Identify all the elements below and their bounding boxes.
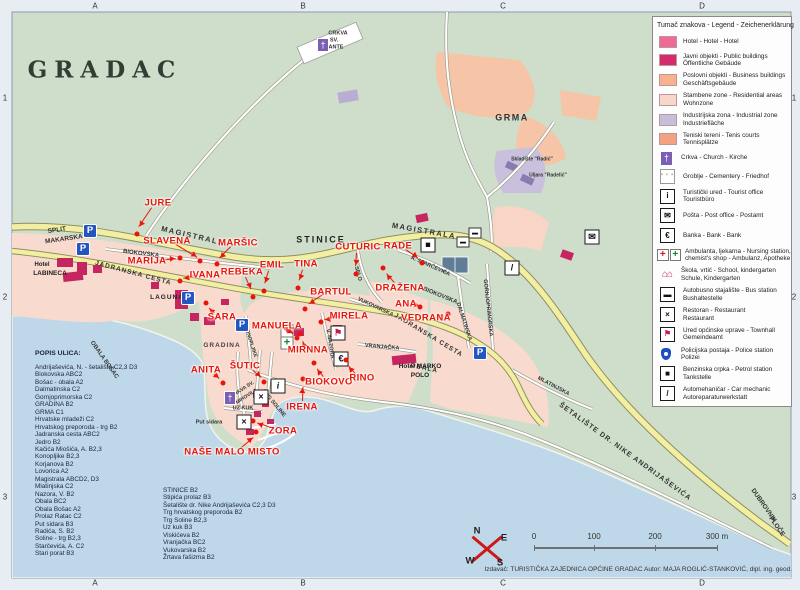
legend-line: Automehaničar - Car mechanic — [683, 386, 787, 394]
street-index-entry: Trg Soline B2,3 — [163, 517, 276, 524]
bus-station-icon: ▬ — [469, 228, 482, 239]
street-index-entry: Dalmatinska C2 — [35, 386, 137, 393]
grid-col-label: A — [92, 2, 97, 11]
street-index-entry: Uz kuk B3 — [163, 524, 276, 531]
petrol-icon: ■ — [660, 366, 675, 381]
place-label: CRKVA — [328, 31, 347, 37]
compass-north-label: N — [474, 526, 481, 537]
legend-item-text: Automehaničar - Car mechanicAutoreparatu… — [683, 386, 787, 401]
map-red-label: ŠUTIC — [230, 361, 261, 371]
legend-line: Restoran - Restaurant — [683, 307, 787, 315]
legend-line: Tennisplätze — [683, 139, 787, 147]
legend-item-tourist-office-icon: iTuristički ured - Tourist officeTourist… — [657, 189, 787, 204]
legend-line: Benzinska crpka - Petrol station — [683, 366, 787, 374]
legend-item-police-icon: Policijska postaja - Police stationPoliz… — [657, 347, 787, 362]
street-index-entry: Šetalište dr. Nike Andrijaševića C2,3 D3 — [163, 502, 276, 509]
label-dot — [420, 261, 425, 266]
map-red-label: ZORA — [269, 426, 298, 436]
tourist-office-icon: i — [271, 379, 286, 394]
legend-item-townhall-icon: ⚑Ured općinske uprave - TownhallGemeinde… — [657, 327, 787, 342]
place-label: POLO — [411, 373, 429, 380]
legend-item-text: Autobusno stajalište - Bus stationBushal… — [683, 287, 787, 302]
map-red-label: TINA — [294, 259, 318, 269]
grid-col-label: B — [300, 579, 305, 588]
parking-icon: P — [473, 346, 487, 360]
legend-line: Turistički ured - Tourist office — [683, 189, 787, 197]
green-cross-icon: + — [670, 249, 682, 261]
legend-item-text: Ambulanta, ljekarna - Nursing station,ch… — [685, 248, 791, 263]
label-dot — [381, 266, 386, 271]
label-dot — [312, 361, 317, 366]
street-index-entry: Starčevića, A. C2 — [35, 543, 137, 550]
legend-item-car-mechanic-icon: /Automehaničar - Car mechanicAutoreparat… — [657, 386, 787, 401]
legend-line: Industriefläche — [683, 120, 787, 128]
church-icon: † — [661, 152, 672, 165]
scale-tick-mark — [655, 545, 656, 551]
label-dot — [251, 295, 256, 300]
street-index-entry: Prolaz Ratac C2 — [35, 513, 137, 520]
legend-item-post-office-icon: ✉Pošta - Post office - Postamt — [657, 208, 787, 223]
grid-col-label: D — [699, 2, 705, 11]
cemetery-icon: ' ' ' — [660, 169, 675, 184]
street-index-entry: Andrijaševića, N. - šetalište C2,3 D3 — [35, 364, 137, 371]
street-index-entry: Jadranska cesta ABC2 — [35, 431, 137, 438]
legend-item-text: Škola, vrtić - School, kindergartenSchul… — [681, 267, 787, 282]
grid-row-label: 1 — [792, 94, 796, 103]
legend-item-hotel-swatch: Hotel - Hotel - Hotel — [657, 36, 787, 48]
street-index-entry: Bošac - obala A2 — [35, 379, 137, 386]
restaurant-icon: × — [237, 415, 252, 430]
street-index-entry: Konopljike B2,3 — [35, 453, 137, 460]
post-office-icon: ✉ — [585, 230, 600, 245]
restaurant-icon: × — [254, 390, 269, 405]
legend-item-petrol-icon: ■Benzinska crpka - Petrol stationTankste… — [657, 366, 787, 381]
street-index-entry: Jedro B2 — [35, 439, 137, 446]
townhall-icon: ⚑ — [331, 326, 346, 341]
credit-line: Izdavač: TURISTIČKA ZAJEDNICA OPĆINE GRA… — [484, 566, 792, 573]
map-red-label: RADE — [384, 241, 413, 251]
legend-item-text: Groblje - Cementery - Friedhof — [683, 173, 787, 181]
ambulance-icon: ++ — [657, 249, 681, 261]
label-dot — [198, 259, 203, 264]
legend-line: Öffentliche Gebäude — [683, 60, 787, 68]
map-red-label: CUTURIC — [335, 242, 381, 252]
map-red-label: SLAVENA — [143, 236, 191, 246]
label-dot — [251, 419, 256, 424]
legend-line: Autoreparaturwerkstatt — [683, 394, 787, 402]
label-dot — [298, 332, 303, 337]
legend-item-text: Crkva - Church - Kirche — [681, 154, 787, 162]
map-canvas: GRADAC POPIS ULICA: Andrijaševića, N. - … — [0, 0, 800, 590]
map-red-label: SARA — [208, 312, 237, 322]
map-red-label: MIRELA — [330, 311, 369, 321]
street-index-entry: Korjanova B2 — [35, 461, 137, 468]
legend-line: Restaurant — [683, 315, 787, 323]
gradac-town-map: GRADAC POPIS ULICA: Andrijaševića, N. - … — [0, 0, 800, 590]
bank-icon: € — [660, 228, 675, 243]
street-index-entry: GRADINA B2 — [35, 401, 137, 408]
grid-row-label: 2 — [792, 293, 796, 302]
map-red-label: MARIJA — [128, 256, 167, 266]
restaurant-icon: × — [660, 307, 675, 322]
street-index-entry: Žrtava fašizma B2 — [163, 554, 276, 561]
business-buildings-swatch — [659, 74, 677, 86]
place-label: GRADINA — [203, 343, 240, 350]
legend-item-church-icon: †Crkva - Church - Kirche — [657, 152, 787, 165]
grid-col-label: C — [500, 2, 506, 11]
street-index-panel-2: STINICE B2Stipića prolaz B3Šetalište dr.… — [163, 487, 276, 562]
map-red-label: VEDRANA — [401, 313, 451, 323]
red-cross-icon: + — [657, 249, 669, 261]
street-index-entry: Soline - trg B2,3 — [35, 535, 137, 542]
legend-line: Banka - Bank - Bank — [683, 232, 787, 240]
legend-item-text: Pošta - Post office - Postamt — [683, 212, 787, 220]
legend-item-bus-station-icon: ▬Autobusno stajalište - Bus stationBusha… — [657, 287, 787, 302]
street-index-title: POPIS ULICA: — [35, 350, 137, 357]
label-dot — [178, 256, 183, 261]
car-mechanic-icon: / — [660, 386, 675, 401]
legend-item-industrial-zone-swatch: Industrijska zona - Industrial zoneIndus… — [657, 112, 787, 127]
label-dot — [303, 307, 308, 312]
label-dot — [296, 286, 301, 291]
grid-col-label: A — [92, 579, 97, 588]
legend-item-text: Policijska postaja - Police stationPoliz… — [681, 347, 787, 362]
post-office-icon: ✉ — [660, 208, 675, 223]
place-label: GRMA — [495, 114, 529, 123]
place-label: ANTE — [329, 45, 344, 51]
tourist-office-icon: i — [660, 189, 675, 204]
residential-zone-swatch — [659, 94, 677, 106]
street-index-entry: Vukovarska B2 — [163, 547, 276, 554]
street-index-entry: Vranjačka BC2 — [163, 539, 276, 546]
legend-line: Geschäftsgebäude — [683, 80, 787, 88]
legend-item-text: Poslovni objekti - Business buildingsGes… — [683, 72, 787, 87]
street-index-list: Andrijaševića, N. - šetalište C2,3 D3Bio… — [35, 364, 137, 558]
street-label: Put sidara — [196, 420, 223, 426]
grid-col-label: B — [300, 2, 305, 11]
legend-line: Ambulanta, ljekarna - Nursing station, — [685, 248, 791, 256]
parking-icon: P — [235, 318, 249, 332]
legend-line: Polizei — [681, 354, 787, 362]
church-icon: † — [317, 38, 329, 52]
legend-line: Hotel - Hotel - Hotel — [683, 38, 787, 46]
place-label: LABINECA — [33, 271, 67, 278]
legend-item-restaurant-icon: ×Restoran - RestaurantRestaurant — [657, 307, 787, 322]
street-index-entry: Nazora, V. B2 — [35, 491, 137, 498]
street-index-entry: Gornjoprimorska C2 — [35, 394, 137, 401]
map-red-label: MARŠIC — [218, 238, 258, 248]
street-index-entry: Put sidara B3 — [35, 521, 137, 528]
legend-item-business-buildings-swatch: Poslovni objekti - Business buildingsGes… — [657, 72, 787, 87]
label-dot — [135, 232, 140, 237]
street-index-entry: Hrvatske mladeži C2 — [35, 416, 137, 423]
street-index-entry: Stari porat B3 — [35, 550, 137, 557]
legend-item-text: Stambene zone - Residential areasWohnzon… — [683, 92, 787, 107]
legend-item-ambulance-icon: ++Ambulanta, ljekarna - Nursing station,… — [657, 248, 787, 263]
street-index-entry: Radića, S. B2 — [35, 528, 137, 535]
grid-row-label: 2 — [3, 293, 7, 302]
label-dot — [319, 320, 324, 325]
petrol-icon: ■ — [421, 238, 436, 253]
street-index-entry: Lovorica A2 — [35, 468, 137, 475]
parking-icon: P — [181, 291, 195, 305]
map-red-label: EMIL — [260, 260, 284, 270]
grid-row-label: 1 — [3, 94, 7, 103]
label-dot — [262, 289, 267, 294]
label-dot — [262, 380, 267, 385]
legend-line: Autobusno stajalište - Bus station — [683, 287, 787, 295]
street-index-entry: Biokovska ABC2 — [35, 371, 137, 378]
legend-item-text: Benzinska crpka - Petrol stationTankstel… — [683, 366, 787, 381]
grid-col-label: D — [699, 579, 705, 588]
legend-item-text: Industrijska zona - Industrial zoneIndus… — [683, 112, 787, 127]
legend-line: Wohnzone — [683, 100, 787, 108]
street-index-list-2: STINICE B2Stipića prolaz B3Šetalište dr.… — [163, 487, 276, 562]
label-dot — [215, 262, 220, 267]
street-index-entry: Obala BC2 — [35, 498, 137, 505]
legend-line: Policijska postaja - Police station — [681, 347, 787, 355]
street-index-entry: GRMA C1 — [35, 409, 137, 416]
tennis-courts-swatch — [659, 133, 677, 145]
legend-line: Škola, vrtić - School, kindergarten — [681, 267, 787, 275]
legend-item-text: Hotel - Hotel - Hotel — [683, 38, 787, 46]
legend-item-bank-icon: €Banka - Bank - Bank — [657, 228, 787, 243]
map-red-label: BIOKOVO — [305, 377, 353, 387]
legend-line: chemist's shop - Ambulanz, Apotheke — [685, 255, 791, 263]
street-index-entry: Mlatinjska C2 — [35, 483, 137, 490]
legend-title: Tumač znakova - Legend - Zeichenerklärun… — [657, 22, 787, 29]
street-index-panel: POPIS ULICA: Andrijaševića, N. - šetališ… — [35, 350, 137, 558]
scale-tick-label: 0 — [532, 532, 536, 541]
scale-tick-label: 100 — [587, 532, 600, 541]
legend-item-tennis-courts-swatch: Teniski tereni - Tenis courtsTennisplätz… — [657, 132, 787, 147]
legend-line: Gemeindeamt — [683, 334, 787, 342]
compass-west-label: W — [466, 556, 475, 567]
map-red-label: MANUELA — [252, 321, 302, 331]
bus-station-icon: ▬ — [660, 287, 675, 302]
church-icon: † — [224, 391, 236, 405]
legend-item-public-buildings-swatch: Javni objekti - Public buildingsÖffentli… — [657, 53, 787, 68]
industrial-zone-swatch — [659, 114, 677, 126]
legend-item-school-icon: ⌂⌂Škola, vrtić - School, kindergartenSch… — [657, 267, 787, 282]
map-red-label: MIRNNA — [288, 345, 328, 355]
legend-line: Poslovni objekti - Business buildings — [683, 72, 787, 80]
label-dot — [254, 430, 259, 435]
map-red-label: NAŠE MALO MISTO — [184, 447, 280, 457]
map-red-label: IVANA — [190, 270, 221, 280]
legend-line: Schule, Kindergarten — [681, 275, 787, 283]
map-red-label: JURE — [145, 198, 172, 208]
car-mechanic-icon: / — [505, 261, 520, 276]
parking-icon: P — [83, 224, 97, 238]
legend-item-text: Restoran - RestaurantRestaurant — [683, 307, 787, 322]
place-label: Hotel — [35, 262, 50, 268]
label-dot — [354, 272, 359, 277]
scale-tick-label: 200 — [648, 532, 661, 541]
street-index-entry: Obala Bošac A2 — [35, 506, 137, 513]
label-dot — [178, 279, 183, 284]
legend-item-residential-zone-swatch: Stambene zone - Residential areasWohnzon… — [657, 92, 787, 107]
legend-panel: Tumač znakova - Legend - Zeichenerklärun… — [652, 16, 792, 407]
label-dot — [204, 301, 209, 306]
map-red-label: REBEKA — [221, 267, 264, 277]
hotel-swatch — [659, 36, 677, 48]
street-index-entry: Stipića prolaz B3 — [163, 494, 276, 501]
map-red-label: RINO — [349, 373, 374, 383]
school-icon: ⌂⌂ — [657, 270, 677, 280]
place-label: LAGUNA — [150, 295, 184, 302]
grid-col-label: C — [500, 579, 506, 588]
legend-item-text: Teniski tereni - Tenis courtsTennisplätz… — [683, 132, 787, 147]
legend-item-text: Turistički ured - Tourist officeTouristb… — [683, 189, 787, 204]
scale-tick-mark — [534, 545, 535, 551]
legend-line: Ured općinske uprave - Townhall — [683, 327, 787, 335]
scale-bar-line — [534, 547, 717, 549]
place-label: Uljara "Radelić" — [529, 174, 567, 179]
legend-item-text: Banka - Bank - Bank — [683, 232, 787, 240]
map-red-label: ANITA — [191, 365, 221, 375]
map-red-label: DRAŽENA — [375, 283, 424, 293]
street-index-entry: Hrvatskog preporoda - trg B2 — [35, 424, 137, 431]
legend-item-cemetery-icon: ' ' 'Groblje - Cementery - Friedhof — [657, 169, 787, 184]
map-title: GRADAC — [28, 57, 183, 84]
label-dot — [344, 358, 349, 363]
street-index-entry: Magistrala ABCD2, D3 — [35, 476, 137, 483]
street-index-entry: Viskićeva B2 — [163, 532, 276, 539]
label-dot — [418, 305, 423, 310]
scale-tick-mark — [594, 545, 595, 551]
map-red-label: IRENA — [286, 402, 318, 412]
legend-line: Teniski tereni - Tenis courts — [683, 132, 787, 140]
grid-row-label: 3 — [792, 493, 796, 502]
scale-bar: 0100200300 m — [534, 532, 729, 554]
street-index-entry: Kačića Miošića, A. B2,3 — [35, 446, 137, 453]
legend-line: Touristbüro — [683, 196, 787, 204]
map-red-label: ANA — [395, 299, 417, 309]
scale-tick-mark — [717, 545, 718, 551]
place-label: Hotel MARKO — [399, 364, 442, 371]
scale-tick-label: 300 m — [706, 532, 728, 541]
legend-line: Bushaltestelle — [683, 295, 787, 303]
map-red-label: BARTUL — [310, 287, 351, 297]
legend-line: Tankstelle — [683, 374, 787, 382]
compass-east-label: E — [501, 533, 507, 544]
street-label: UZ KUK — [233, 406, 254, 412]
label-dot — [221, 381, 226, 386]
legend-line: Crkva - Church - Kirche — [681, 154, 787, 162]
police-icon — [661, 348, 671, 360]
legend-line: Industrijska zona - Industrial zone — [683, 112, 787, 120]
street-index-entry: STINICE B2 — [163, 487, 276, 494]
legend-item-text: Ured općinske uprave - TownhallGemeindea… — [683, 327, 787, 342]
street-index-entry: Trg hrvatskog preporoda B2 — [163, 509, 276, 516]
legend-line: Groblje - Cementery - Friedhof — [683, 173, 787, 181]
place-label: SV. — [330, 38, 338, 44]
legend-line: Stambene zone - Residential areas — [683, 92, 787, 100]
legend-items: Hotel - Hotel - HotelJavni objekti - Pub… — [657, 36, 787, 401]
parking-icon: P — [76, 242, 90, 256]
grid-row-label: 3 — [3, 493, 7, 502]
townhall-icon: ⚑ — [660, 327, 675, 342]
place-label: Skladište "Radić" — [511, 158, 553, 163]
legend-item-text: Javni objekti - Public buildingsÖffentli… — [683, 53, 787, 68]
public-buildings-swatch — [659, 54, 677, 66]
legend-line: Pošta - Post office - Postamt — [683, 212, 787, 220]
